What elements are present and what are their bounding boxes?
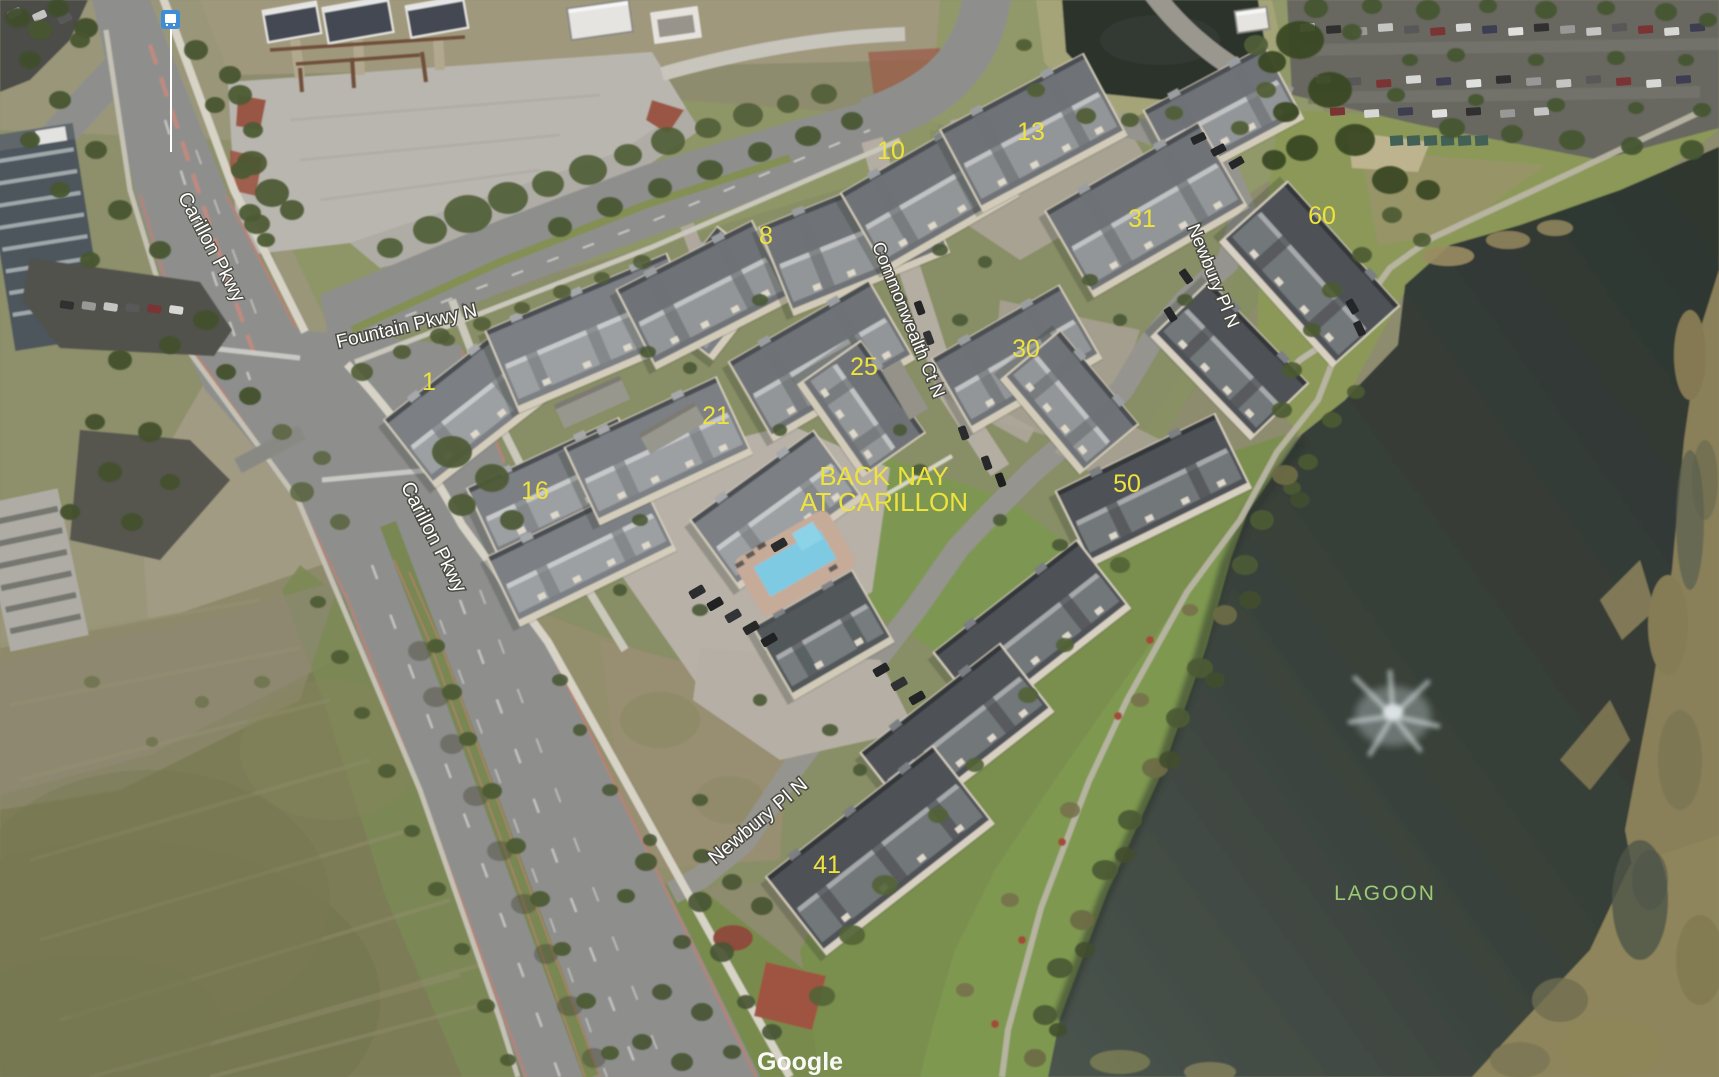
svg-text:60: 60 (1308, 202, 1336, 230)
svg-text:31: 31 (1128, 205, 1156, 233)
svg-text:10: 10 (877, 137, 905, 165)
svg-text:41: 41 (813, 851, 841, 879)
svg-text:16: 16 (521, 477, 549, 505)
svg-text:Google: Google (757, 1048, 843, 1076)
svg-text:30: 30 (1012, 335, 1040, 363)
svg-text:25: 25 (850, 353, 878, 381)
svg-text:21: 21 (702, 402, 730, 430)
svg-text:50: 50 (1113, 470, 1141, 498)
svg-text:LAGOON: LAGOON (1334, 882, 1436, 905)
svg-text:13: 13 (1017, 118, 1045, 146)
svg-text:AT CARILLON: AT CARILLON (800, 487, 968, 517)
svg-text:1: 1 (422, 368, 436, 396)
svg-text:8: 8 (759, 222, 773, 250)
